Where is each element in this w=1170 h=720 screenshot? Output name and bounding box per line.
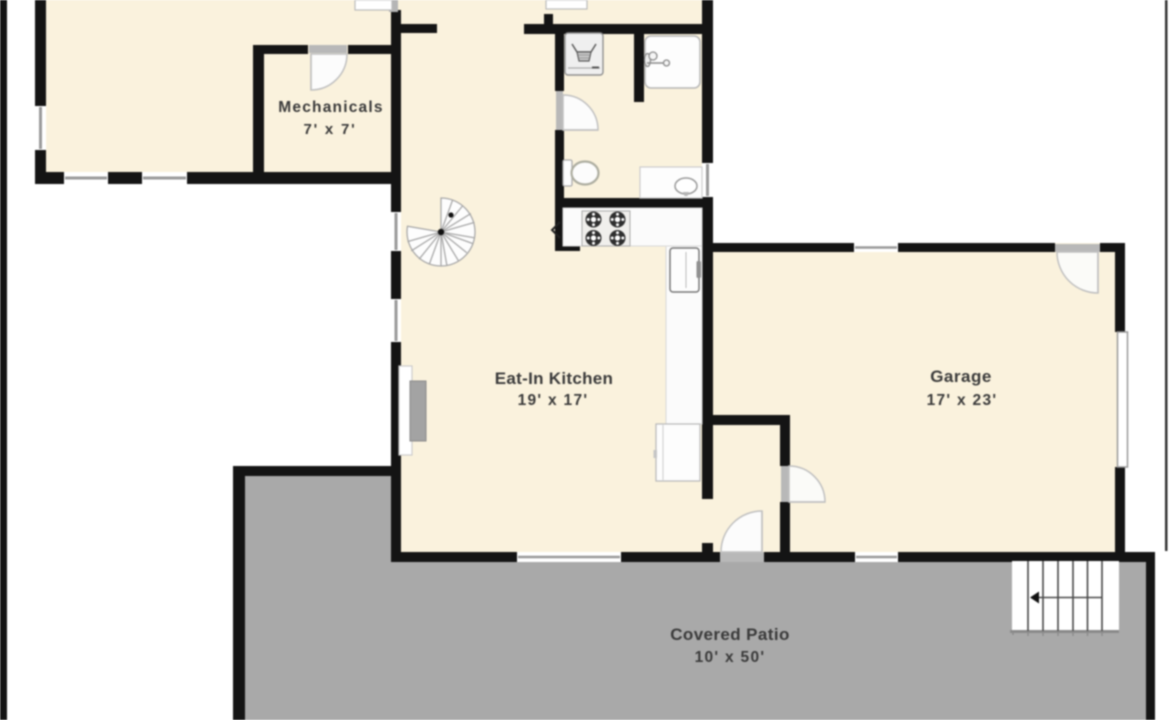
svg-text:19' x 17': 19' x 17' [518,392,589,409]
svg-text:Eat-In Kitchen: Eat-In Kitchen [495,369,614,388]
svg-text:10' x 50': 10' x 50' [695,649,766,666]
svg-text:Garage: Garage [930,367,992,386]
svg-text:17' x 23': 17' x 23' [927,392,998,409]
svg-text:Mechanicals: Mechanicals [278,99,383,116]
svg-text:Covered Patio: Covered Patio [670,625,790,644]
svg-text:7' x 7': 7' x 7' [303,121,356,138]
